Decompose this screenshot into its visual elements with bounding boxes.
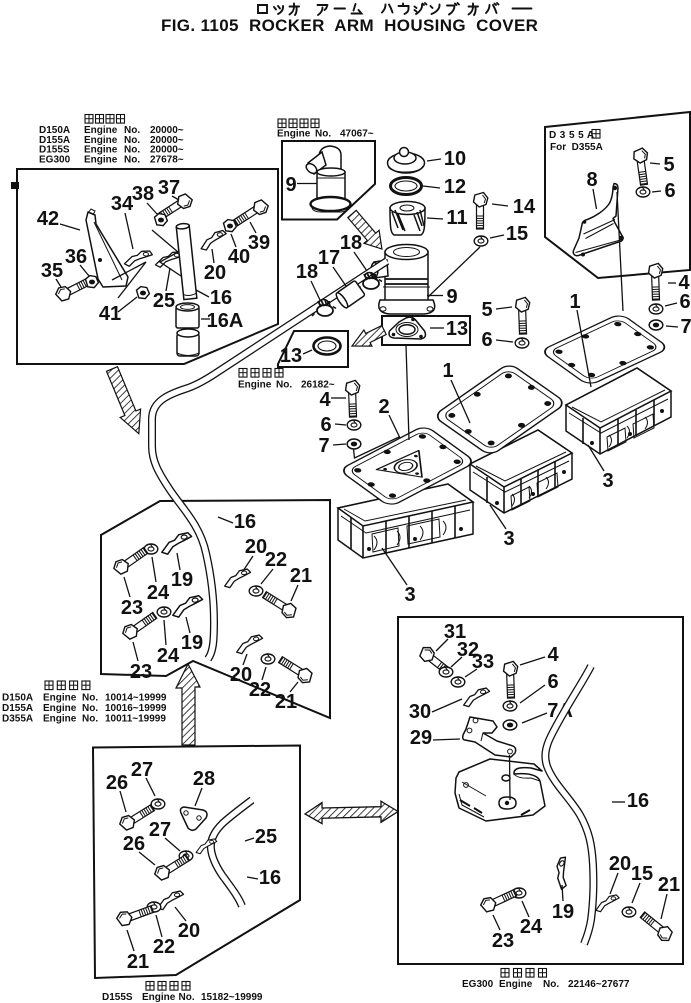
svg-text:35: 35 bbox=[41, 260, 63, 282]
svg-text:22: 22 bbox=[153, 936, 175, 958]
svg-text:9: 9 bbox=[446, 286, 457, 308]
svg-text:EG300EngineNo.22146~27677: EG300EngineNo.22146~27677 bbox=[462, 979, 630, 990]
svg-text:24: 24 bbox=[157, 645, 180, 667]
svg-text:23: 23 bbox=[121, 597, 143, 619]
svg-text:15: 15 bbox=[631, 863, 653, 885]
svg-text:18: 18 bbox=[340, 232, 362, 254]
svg-text:22: 22 bbox=[249, 679, 271, 701]
svg-text:8: 8 bbox=[586, 169, 597, 191]
svg-text:For D355A: For D355A bbox=[550, 142, 603, 153]
svg-text:5: 5 bbox=[663, 154, 674, 176]
svg-text:9: 9 bbox=[285, 174, 296, 196]
svg-text:11: 11 bbox=[446, 207, 467, 229]
svg-text:19: 19 bbox=[552, 901, 574, 923]
svg-text:21: 21 bbox=[658, 874, 680, 896]
svg-text:3: 3 bbox=[404, 584, 415, 606]
svg-text:EG300EngineNo.27678~: EG300EngineNo.27678~ bbox=[39, 155, 184, 166]
svg-text:20: 20 bbox=[204, 262, 226, 284]
svg-text:16: 16 bbox=[234, 511, 256, 533]
svg-text:D150AEngineNo.10014~19999: D150AEngineNo.10014~19999 bbox=[2, 693, 167, 704]
svg-text:D155SEngineNo.15182~19999: D155SEngineNo.15182~19999 bbox=[102, 992, 263, 1003]
svg-text:21: 21 bbox=[290, 565, 312, 587]
svg-text:5: 5 bbox=[481, 299, 492, 321]
svg-text:41: 41 bbox=[99, 303, 121, 325]
svg-text:36: 36 bbox=[65, 246, 87, 268]
svg-text:19: 19 bbox=[181, 632, 203, 654]
svg-text:4: 4 bbox=[319, 389, 331, 411]
svg-text:23: 23 bbox=[130, 661, 152, 683]
svg-text:30: 30 bbox=[409, 701, 431, 723]
svg-text:25: 25 bbox=[153, 290, 175, 312]
svg-text:13: 13 bbox=[280, 345, 302, 367]
svg-text:39: 39 bbox=[248, 232, 270, 254]
svg-text:22: 22 bbox=[265, 549, 287, 571]
svg-text:20: 20 bbox=[245, 536, 267, 558]
svg-text:13: 13 bbox=[446, 318, 468, 340]
svg-text:3: 3 bbox=[602, 470, 613, 492]
svg-text:20: 20 bbox=[609, 853, 631, 875]
svg-text:1: 1 bbox=[569, 291, 580, 313]
svg-text:18: 18 bbox=[296, 261, 318, 283]
svg-text:6: 6 bbox=[679, 291, 690, 313]
svg-text:21: 21 bbox=[127, 951, 149, 973]
svg-text:10: 10 bbox=[444, 148, 466, 170]
svg-text:16: 16 bbox=[259, 867, 281, 889]
svg-text:37: 37 bbox=[158, 177, 180, 199]
svg-text:21: 21 bbox=[275, 691, 297, 713]
svg-text:14: 14 bbox=[513, 196, 536, 218]
svg-text:FIG. 1105 ROCKER ARM HOUSIN: FIG. 1105 ROCKER ARM HOUSING COVER bbox=[161, 16, 538, 35]
svg-text:7: 7 bbox=[680, 316, 691, 338]
svg-text:EngineNo.47067~: EngineNo.47067~ bbox=[277, 129, 374, 140]
svg-text:24: 24 bbox=[520, 916, 543, 938]
svg-text:23: 23 bbox=[492, 930, 514, 952]
svg-text:6: 6 bbox=[664, 180, 675, 202]
svg-text:6: 6 bbox=[320, 414, 331, 436]
svg-text:19: 19 bbox=[171, 569, 193, 591]
svg-text:D 3 5 5 A: D 3 5 5 A bbox=[549, 130, 594, 141]
svg-text:1: 1 bbox=[442, 360, 453, 382]
svg-text:4: 4 bbox=[547, 644, 559, 666]
svg-text:28: 28 bbox=[193, 768, 215, 790]
svg-text:16: 16 bbox=[627, 790, 649, 812]
svg-text:2: 2 bbox=[378, 396, 389, 418]
svg-text:16A: 16A bbox=[207, 310, 244, 332]
svg-text:24: 24 bbox=[147, 582, 170, 604]
svg-text:6: 6 bbox=[481, 329, 492, 351]
svg-text:3: 3 bbox=[503, 528, 514, 550]
svg-text:38: 38 bbox=[132, 183, 154, 205]
svg-text:6: 6 bbox=[547, 671, 558, 693]
svg-text:7: 7 bbox=[318, 435, 329, 457]
svg-text:34: 34 bbox=[111, 193, 134, 215]
svg-text:27: 27 bbox=[149, 819, 171, 841]
svg-text:12: 12 bbox=[444, 176, 466, 198]
svg-text:D355AEngineNo.10011~19999: D355AEngineNo.10011~19999 bbox=[2, 714, 166, 725]
svg-text:29: 29 bbox=[410, 727, 432, 749]
svg-text:26: 26 bbox=[106, 772, 128, 794]
svg-text:26: 26 bbox=[123, 833, 145, 855]
svg-text:42: 42 bbox=[37, 208, 59, 230]
svg-text:17: 17 bbox=[318, 247, 340, 269]
svg-text:25: 25 bbox=[255, 826, 277, 848]
svg-text:D155AEngineNo.10016~19999: D155AEngineNo.10016~19999 bbox=[2, 703, 167, 714]
svg-text:20: 20 bbox=[178, 920, 200, 942]
svg-text:16: 16 bbox=[210, 287, 232, 309]
svg-text:27: 27 bbox=[131, 759, 153, 781]
svg-text:40: 40 bbox=[228, 246, 250, 268]
svg-text:15: 15 bbox=[506, 223, 528, 245]
